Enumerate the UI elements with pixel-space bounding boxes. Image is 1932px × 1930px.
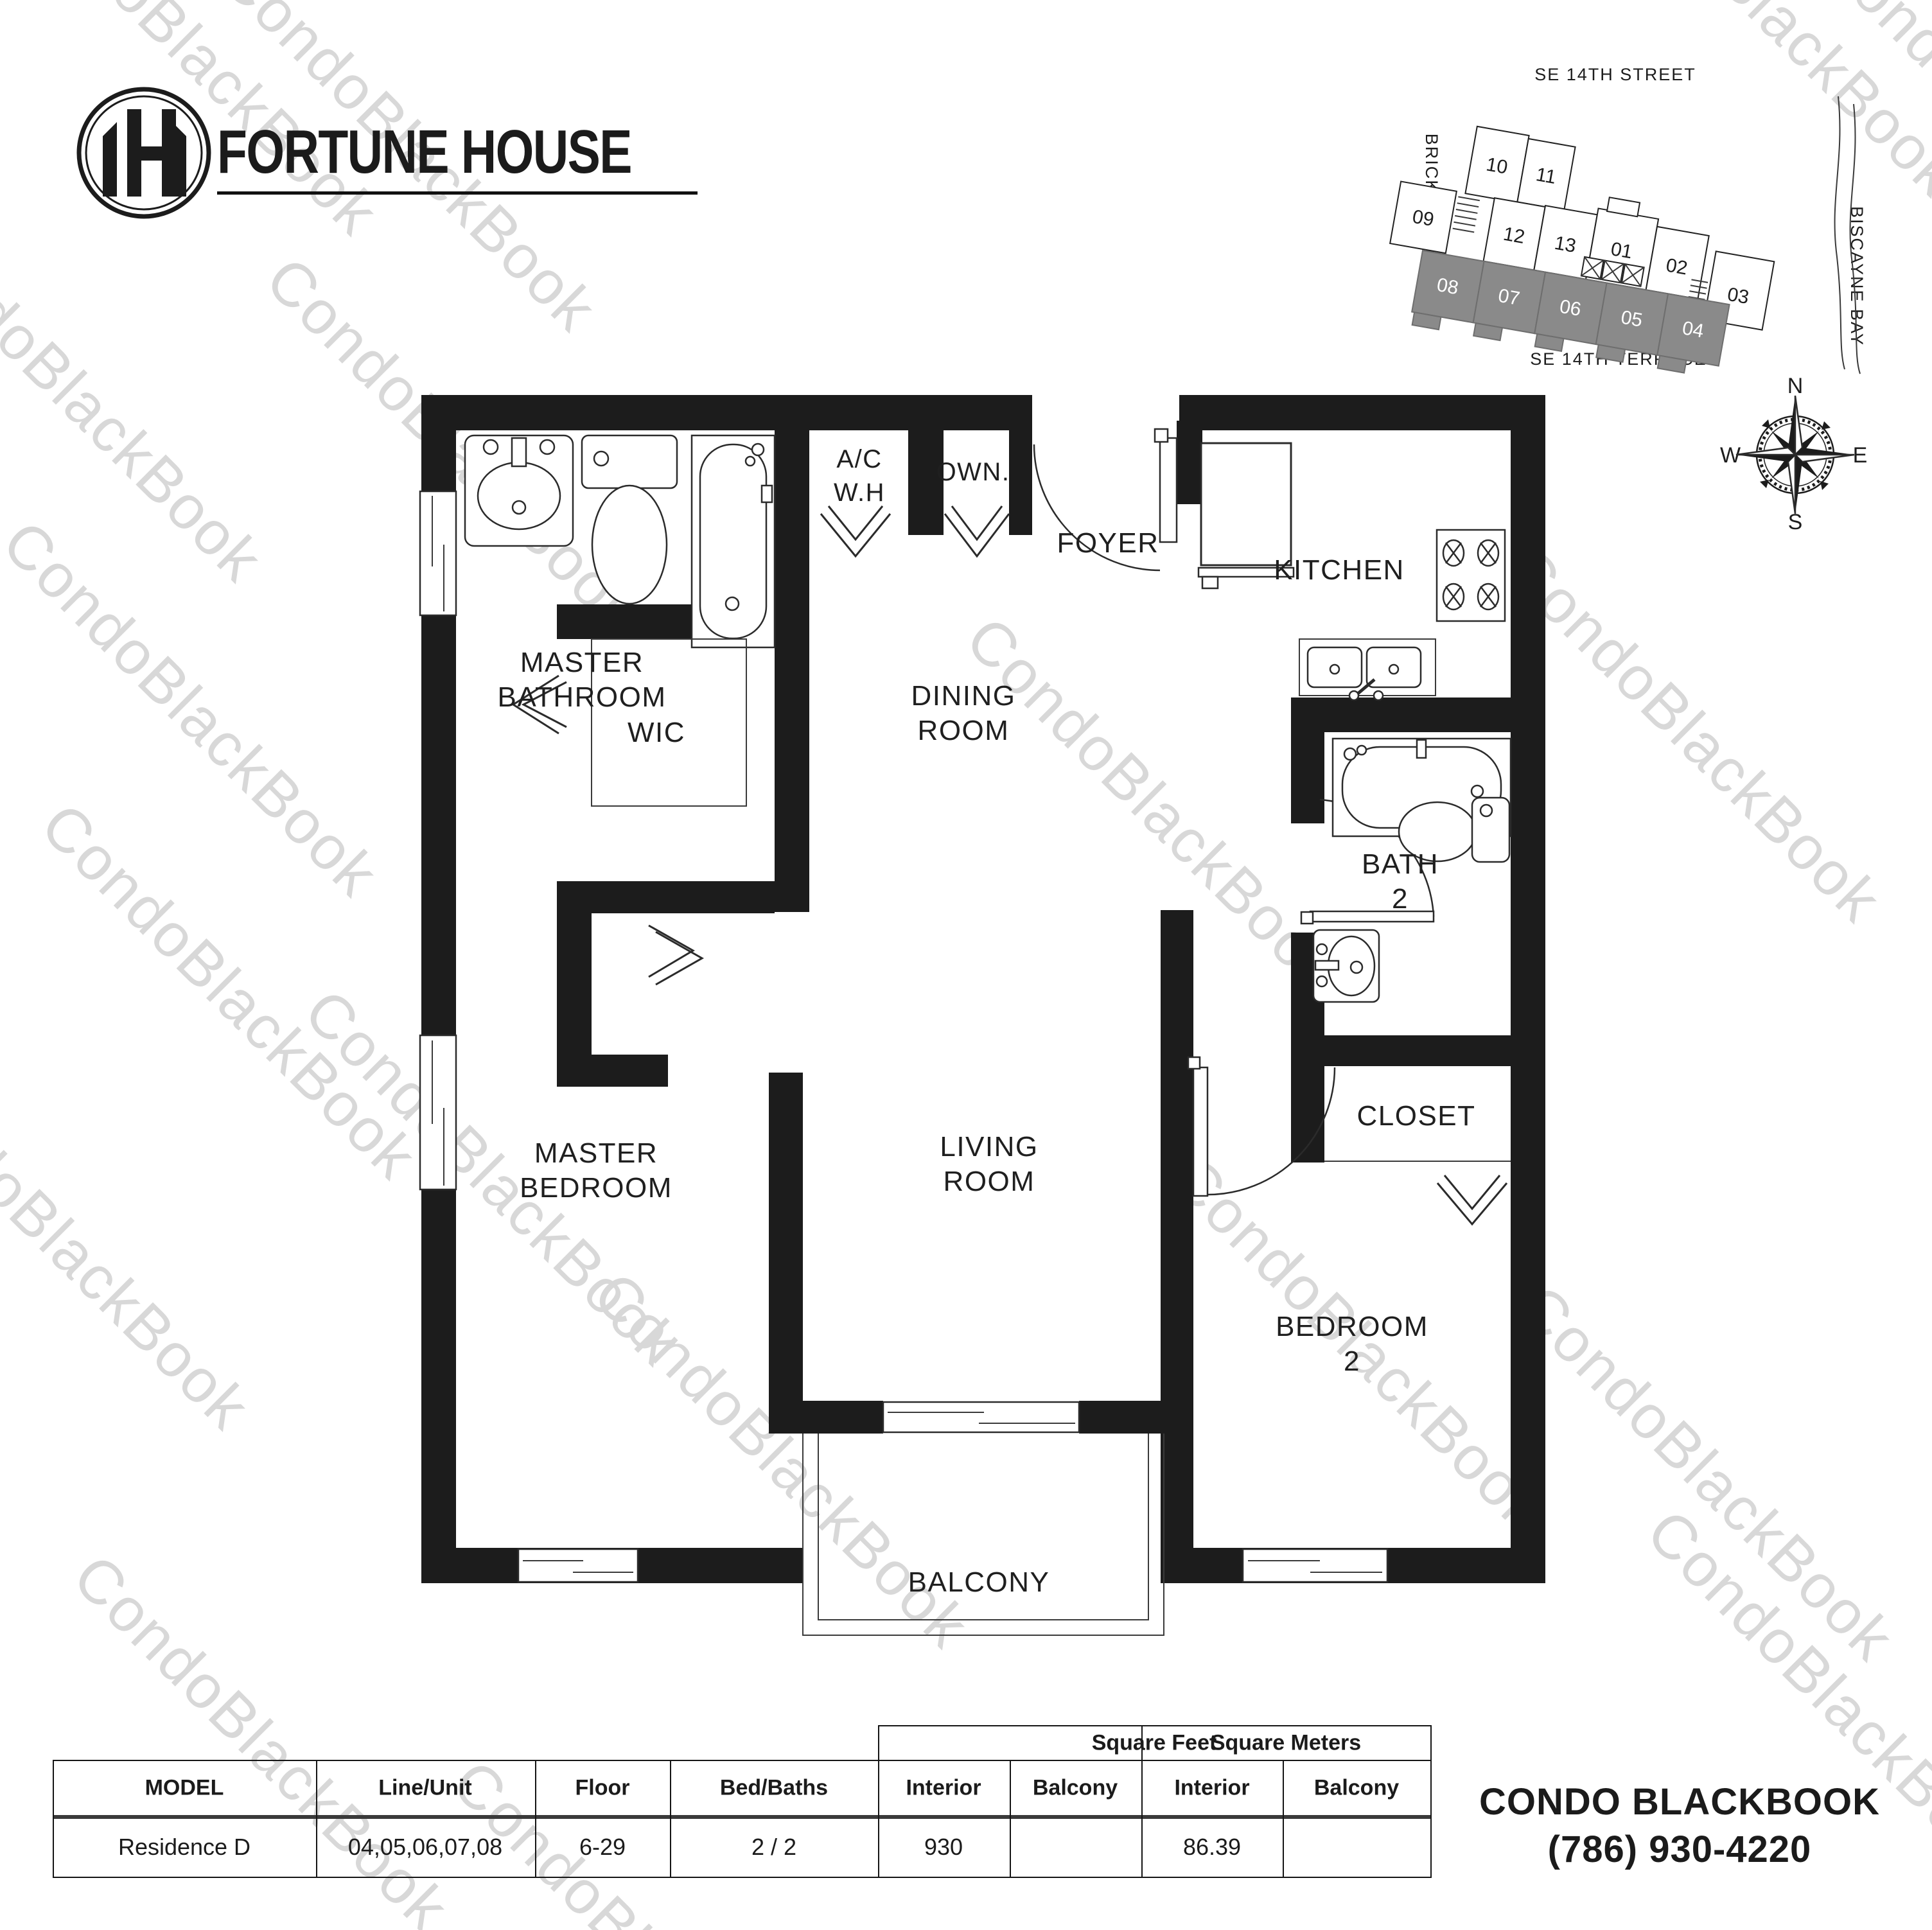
cell-sqm-interior: 86.39 [1183, 1834, 1241, 1861]
stove-icon [1437, 530, 1505, 621]
floorplan-brochure-page: CondoBlackBook CondoBlackBook CondoBlack… [0, 0, 1932, 1930]
cell-floor: 6-29 [579, 1834, 626, 1861]
cell-model: Residence D [118, 1834, 250, 1861]
cell-line-unit: 04,05,06,07,08 [348, 1834, 502, 1861]
room-label-master-bathroom: MASTER [520, 647, 644, 678]
col-header-line-unit: Line/Unit [378, 1776, 471, 1801]
unit-label: 01 [1609, 238, 1634, 263]
cell-sqft-interior: 930 [924, 1834, 963, 1861]
room-label-closet: CLOSET [1357, 1100, 1475, 1132]
page-title: FORTUNE HOUSE [217, 117, 631, 188]
site-key-map: SE 14TH STREET SE 14TH TERRACE BRICKELL … [1362, 45, 1932, 379]
room-label-bath2: BATH [1362, 848, 1439, 880]
unit-label: 13 [1553, 232, 1578, 257]
room-label-living: LIVING [940, 1131, 1038, 1162]
bathtub-icon [692, 435, 775, 647]
unit-label: 10 [1484, 154, 1509, 178]
unit-label-shaded: 05 [1619, 306, 1644, 331]
group-header-square-meters: Square Meters [1211, 1731, 1361, 1756]
footer-phone: (786) 930-4220 [1548, 1828, 1812, 1871]
svg-text:ROOM: ROOM [918, 715, 1010, 746]
unit-label-shaded: 08 [1436, 274, 1461, 299]
balcony-outline [803, 1434, 1164, 1635]
svg-text:2: 2 [1344, 1346, 1360, 1377]
fortune-house-logo [71, 82, 218, 225]
title-underline [217, 191, 698, 195]
col-header-sqm-interior: Interior [1174, 1776, 1249, 1801]
svg-text:ROOM: ROOM [944, 1166, 1035, 1197]
col-header-sqm-balcony: Balcony [1314, 1776, 1399, 1801]
compass-n: N [1787, 374, 1804, 398]
room-label-master-bedroom: MASTER [534, 1137, 658, 1169]
unit-label-shaded: 06 [1558, 296, 1583, 320]
room-label-ac-wh: A/C [836, 445, 882, 473]
unit-label: 09 [1410, 206, 1436, 231]
bathroom-sink-icon [465, 435, 573, 546]
footer-brand: CONDO BLACKBOOK [1479, 1780, 1880, 1823]
col-header-sqft-balcony: Balcony [1033, 1776, 1118, 1801]
floor-plan: MASTER BATHROOM A/C W.H OWN. FOYER KITCH… [385, 360, 1606, 1670]
room-label-bedroom2: BEDROOM [1276, 1311, 1428, 1342]
svg-text:BATHROOM: BATHROOM [498, 681, 667, 713]
col-header-floor: Floor [575, 1776, 630, 1801]
svg-text:2: 2 [1392, 883, 1409, 915]
col-header-model: MODEL [145, 1776, 224, 1801]
col-header-bed-baths: Bed/Baths [720, 1776, 828, 1801]
svg-text:BEDROOM: BEDROOM [520, 1172, 672, 1204]
compass-e: E [1853, 443, 1868, 468]
svg-text:W.H: W.H [834, 478, 885, 507]
toilet-icon [582, 435, 677, 604]
room-label-own: OWN. [936, 458, 1010, 486]
col-header-sqft-interior: Interior [906, 1776, 981, 1801]
room-label-wic: WIC [628, 717, 685, 748]
watermark: CondoBlackBook [0, 1040, 263, 1444]
room-label-balcony: BALCONY [908, 1566, 1050, 1598]
room-label-kitchen: KITCHEN [1274, 554, 1405, 586]
sliding-door-icon [883, 1402, 1079, 1432]
unit-label: 02 [1664, 254, 1689, 279]
street-label-top: SE 14TH STREET [1534, 65, 1696, 84]
kitchen-sink-icon [1299, 639, 1436, 700]
room-label-foyer: FOYER [1057, 527, 1159, 559]
bath2-sink-icon [1313, 930, 1379, 1002]
unit-label-shaded: 07 [1497, 285, 1522, 310]
unit-label: 11 [1534, 164, 1558, 188]
group-header-square-feet: Square Feet [1092, 1731, 1217, 1756]
unit-label-shaded: 04 [1681, 317, 1706, 342]
fh-monogram-icon [103, 109, 186, 197]
room-label-dining: DINING [911, 680, 1016, 712]
cell-bed-baths: 2 / 2 [751, 1834, 796, 1861]
unit-label: 12 [1502, 224, 1527, 248]
compass-rose-icon: N W E S [1715, 367, 1875, 536]
unit-label: 03 [1726, 284, 1751, 308]
